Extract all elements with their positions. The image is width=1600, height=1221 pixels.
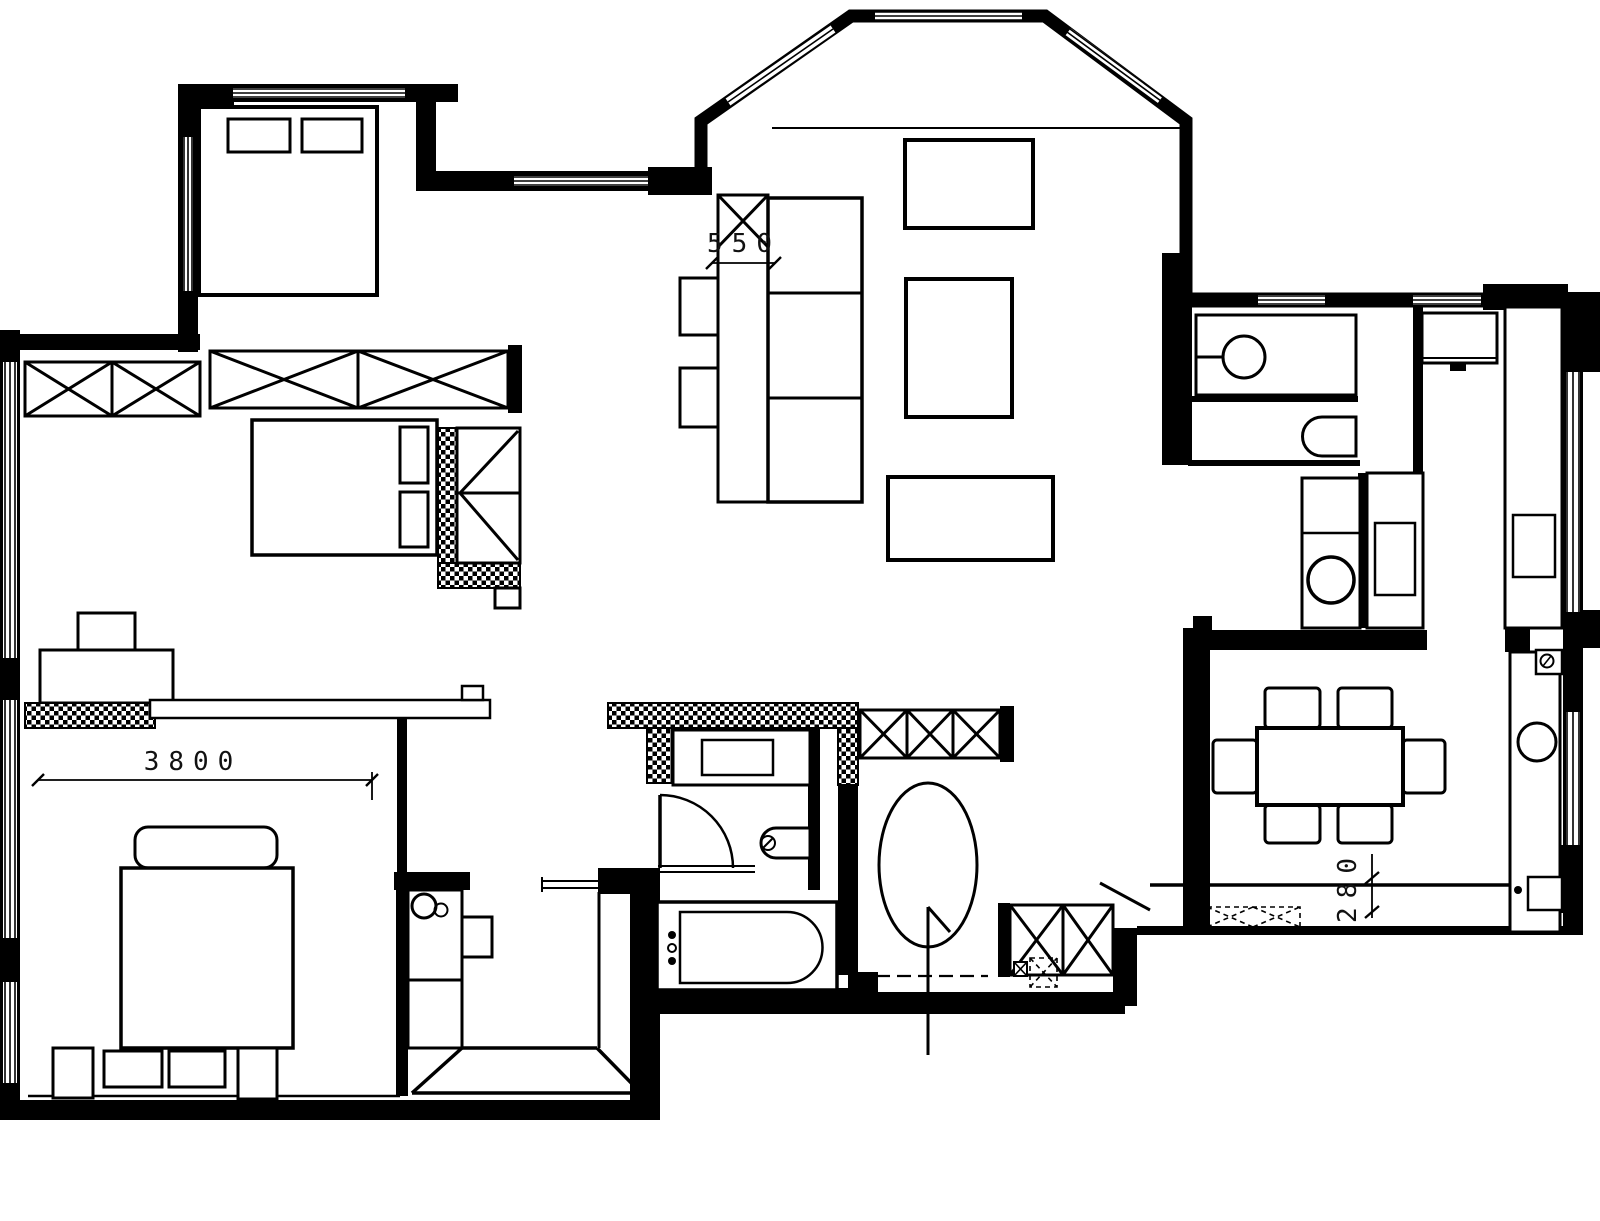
dimension-sofa-clearance: 550 <box>706 229 781 269</box>
wall-kitchen-dining-band <box>1210 630 1427 650</box>
dining-room: 280 <box>1207 650 1562 932</box>
pillow <box>228 119 290 152</box>
desk <box>40 650 173 703</box>
fridge <box>1375 523 1415 595</box>
dining-chair <box>1265 688 1320 728</box>
wall-nook-topright <box>598 868 650 894</box>
dining-chair <box>1213 740 1257 793</box>
window-pane-line <box>1064 35 1158 104</box>
window-pane-line <box>1067 32 1161 101</box>
wall-stub <box>1162 253 1184 295</box>
wardrobes <box>25 345 522 416</box>
wall-bathroom-east <box>838 785 858 975</box>
pillow <box>400 492 428 547</box>
dining-table <box>1257 728 1403 805</box>
small-cabinet <box>495 588 520 608</box>
dimension-master-width: 3800 <box>32 747 378 800</box>
window-pane-line <box>728 29 833 102</box>
dimension-label-3800: 3800 <box>144 747 243 777</box>
closet-end-cap <box>998 903 1010 977</box>
wall-nook-cap <box>394 872 470 890</box>
floor-plan-page: 3800 <box>0 0 1600 1221</box>
tiled-ledge <box>25 703 155 728</box>
dimension-label-550: 550 <box>707 229 781 259</box>
ac-unit-x <box>1207 907 1253 927</box>
wall-block <box>1565 610 1600 648</box>
tiled-wall-top <box>608 703 858 728</box>
bed-headboard <box>135 827 277 868</box>
bed-bench-side <box>53 1048 93 1098</box>
bath-module <box>1196 315 1423 628</box>
ac-unit-x <box>1253 907 1300 927</box>
wall-bridge <box>18 334 200 350</box>
wall-entry-south <box>877 992 1125 1014</box>
wall-bath-module-west <box>1162 293 1192 465</box>
window-pane-line <box>1070 29 1164 98</box>
floor-plan-canvas: 3800 <box>0 0 1600 1221</box>
kitchen <box>1422 307 1562 628</box>
cooktop <box>1513 515 1555 577</box>
ac-unit-x <box>1207 907 1253 927</box>
wall-master-east <box>397 716 407 874</box>
tiled-wall-stub-right <box>838 728 858 785</box>
ottoman <box>888 477 1053 560</box>
wardrobe-end-cap <box>508 345 522 413</box>
bed-bench-cushion <box>104 1051 162 1087</box>
dressing-nook <box>408 877 641 1093</box>
pillow <box>302 119 362 152</box>
wall-block <box>1565 292 1600 372</box>
coffee-table <box>906 279 1012 417</box>
bathtub <box>657 902 837 990</box>
shelf-notch <box>462 686 483 700</box>
ac-unit-dashed <box>1207 907 1300 927</box>
toilet <box>1303 417 1356 456</box>
bedroom-top-left <box>199 107 377 295</box>
drain-dot <box>1514 886 1522 894</box>
pillow <box>400 427 428 483</box>
dining-chair <box>1265 805 1320 843</box>
living-room: 550 <box>680 140 1053 560</box>
sofa <box>768 198 862 502</box>
dining-chair <box>1403 740 1445 793</box>
closet <box>457 428 520 563</box>
ac-unit-x <box>1253 907 1300 927</box>
dimension-dining-offset: 280 <box>1333 849 1379 923</box>
kitchen-counter-east <box>1505 307 1562 628</box>
bedroom-middle-left <box>40 420 520 703</box>
laundry-cabinet <box>1302 478 1360 628</box>
side-table <box>680 368 718 427</box>
wall-tv-stand <box>1450 363 1466 371</box>
door-swing-arc <box>660 795 733 868</box>
bed <box>121 868 293 1048</box>
vanity-mirror <box>702 740 773 775</box>
dining-chair <box>1338 805 1392 843</box>
tub-control <box>668 931 676 939</box>
wall-block <box>1560 845 1583 913</box>
wall-tv <box>1422 313 1497 363</box>
closet-splay <box>412 1048 462 1093</box>
dimension-label-280: 280 <box>1333 849 1363 923</box>
washbasin-counter <box>1196 315 1356 395</box>
window-pane-line <box>731 33 836 106</box>
dining-chair <box>1338 688 1392 728</box>
wall-nook-left <box>396 890 408 1096</box>
tv-cabinet <box>905 140 1033 228</box>
window-pane-line <box>725 25 830 98</box>
side-table <box>680 278 718 335</box>
entry-marker-flag <box>928 907 950 932</box>
shelf-counter <box>150 700 490 718</box>
bed-bench-cushion <box>169 1051 225 1087</box>
vanity-cabinet-low <box>408 980 462 1048</box>
tiled-wall-horizontal <box>438 563 520 588</box>
side-box <box>462 917 492 957</box>
bed-bench-side <box>238 1048 277 1099</box>
counter-box <box>1528 877 1562 910</box>
tiled-wall-stub-left <box>647 728 672 783</box>
wall-bathroom-south <box>630 988 855 1014</box>
tub-control <box>668 957 676 965</box>
wardrobe-end-cap <box>1000 706 1014 762</box>
wall-notch <box>1193 616 1212 630</box>
desk-chair <box>78 613 135 650</box>
